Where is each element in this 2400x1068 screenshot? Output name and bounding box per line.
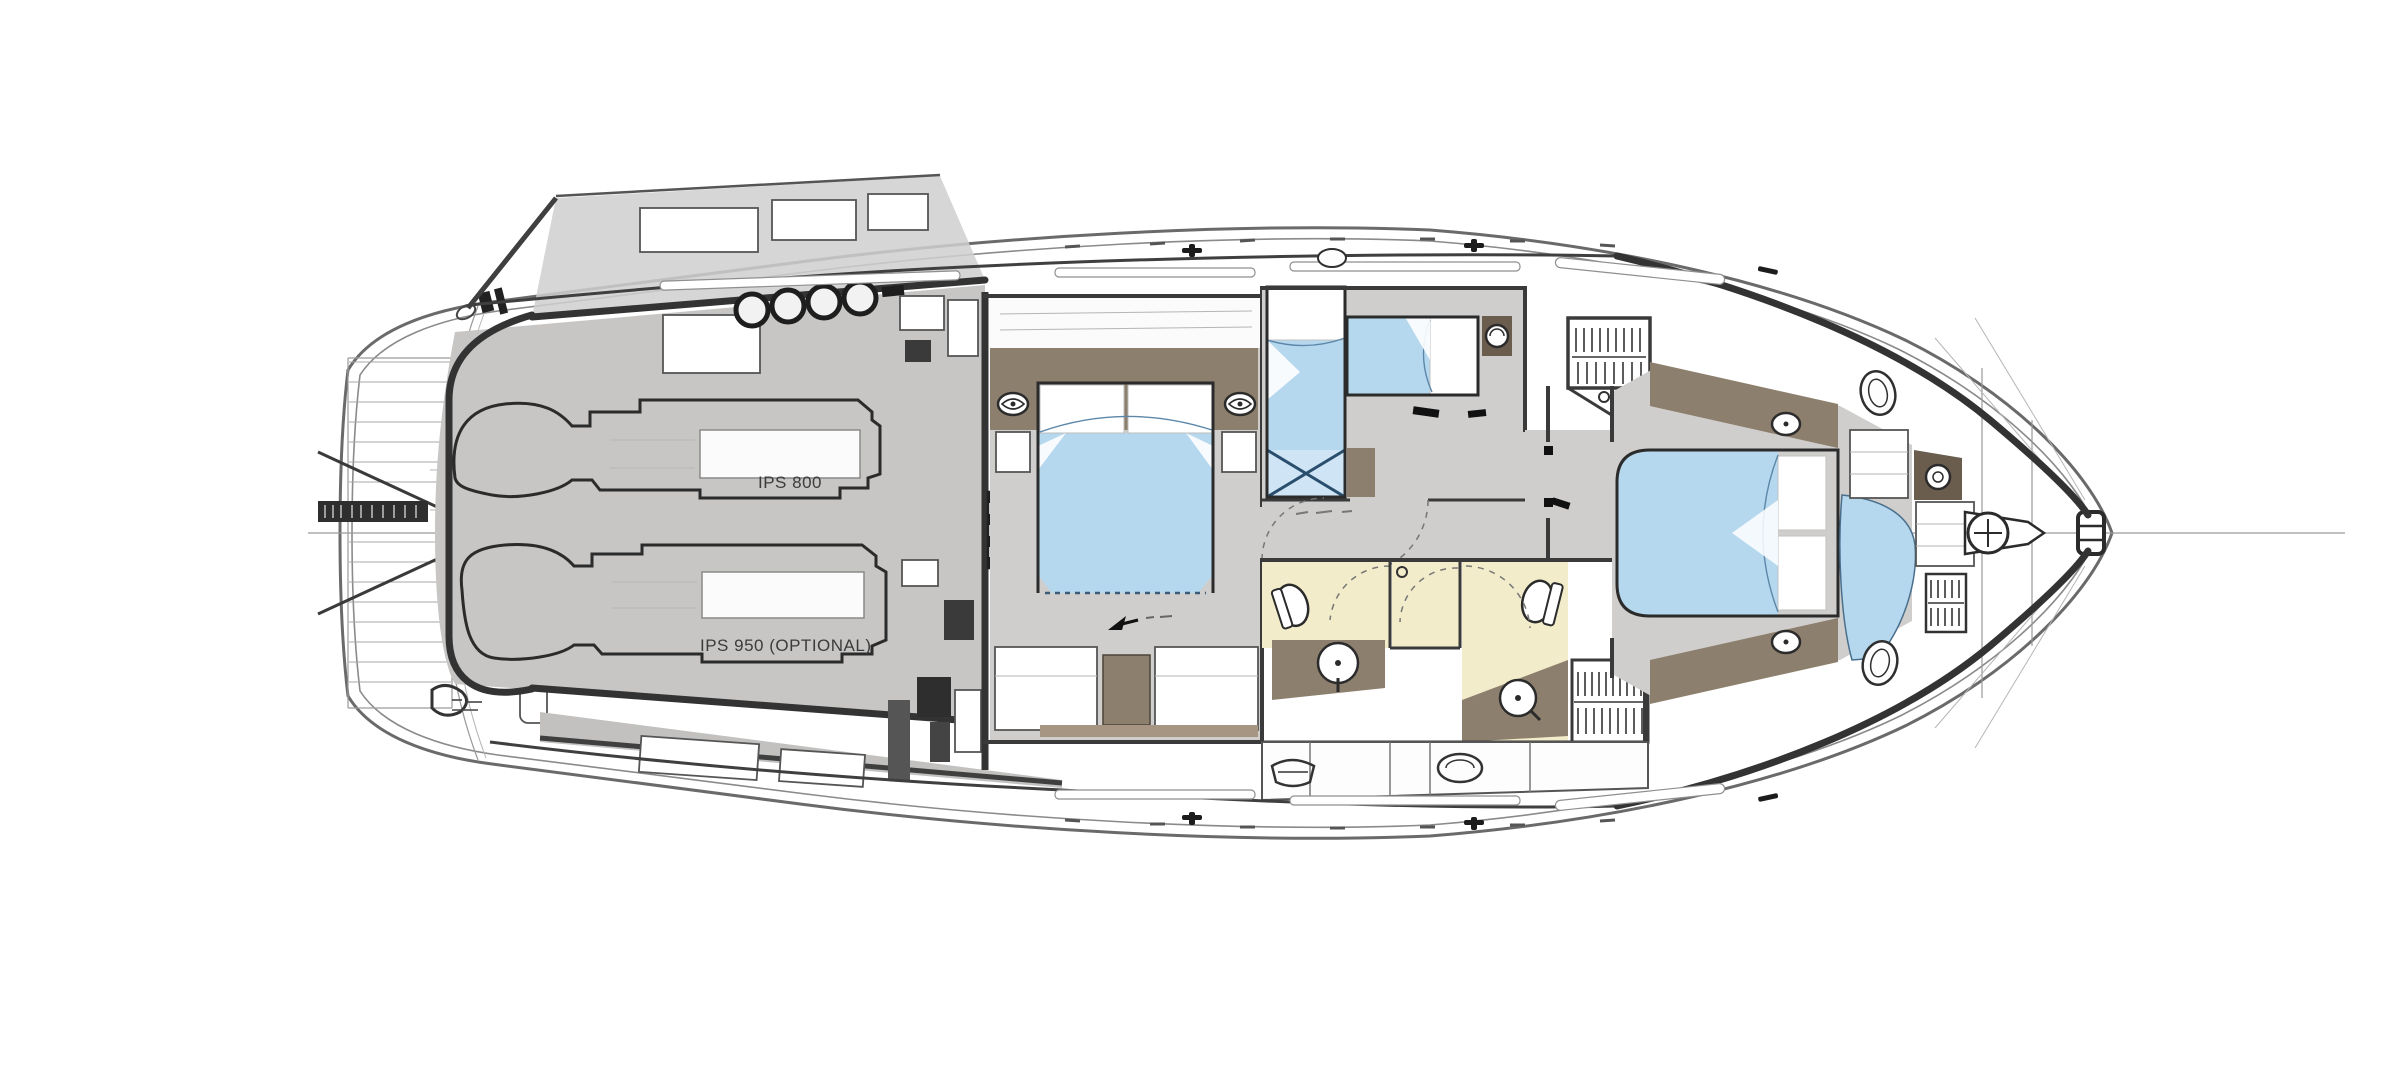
- nightstand: [996, 432, 1030, 472]
- transom-plate: [318, 501, 428, 522]
- guest-bunk-cabin: [1262, 287, 1525, 505]
- shower-floor: [1392, 560, 1460, 648]
- wardrobe-plinth: [1040, 725, 1258, 737]
- master-wardrobe: [995, 647, 1258, 737]
- deck-box: [868, 194, 928, 230]
- wardrobe-door: [1103, 655, 1150, 725]
- nightstand: [1222, 432, 1256, 472]
- engine-block-detail: [700, 430, 860, 478]
- porthole-icon: [1914, 450, 1962, 500]
- engine-label-1: IPS 800: [758, 473, 822, 492]
- deck-box: [779, 749, 865, 787]
- single-bed-horizontal: [1347, 317, 1478, 395]
- engine-label-2: IPS 950 (OPTIONAL): [700, 636, 872, 655]
- single-bed-vertical: [1267, 287, 1345, 497]
- deck-plan-svg: IPS 800 IPS 950 (OPTIONAL): [0, 0, 2400, 1068]
- vip-cabin: [1612, 362, 1974, 704]
- bow-lounge-seat: [1840, 495, 1916, 660]
- engine-block-detail: [702, 572, 864, 618]
- deck-box: [772, 200, 856, 240]
- yacht-deck-plan: IPS 800 IPS 950 (OPTIONAL): [0, 0, 2400, 1068]
- drawer-unit: [1926, 574, 1966, 632]
- reading-light-icon: [1225, 393, 1255, 415]
- master-cabin: [985, 288, 1262, 742]
- bow-fitting: [2078, 512, 2104, 554]
- deck-box: [639, 736, 759, 780]
- reading-light-icon: [998, 393, 1028, 415]
- reading-light-icon: [1772, 631, 1800, 653]
- deck-box: [640, 208, 758, 252]
- bow-cabinet: [1850, 430, 1908, 498]
- reading-light-icon: [1772, 413, 1800, 435]
- master-window-strip: [990, 296, 1262, 348]
- guest-head: [1462, 560, 1568, 742]
- bathrooms: [1262, 560, 1648, 800]
- door-knob: [1599, 392, 1609, 402]
- porthole-icon: [1482, 316, 1512, 356]
- shower: [1390, 560, 1460, 648]
- platform-taper-line: [318, 554, 448, 614]
- hull-lockers: [1262, 742, 1648, 800]
- day-head: [1262, 560, 1390, 700]
- bunk-cabinet: [1347, 448, 1375, 497]
